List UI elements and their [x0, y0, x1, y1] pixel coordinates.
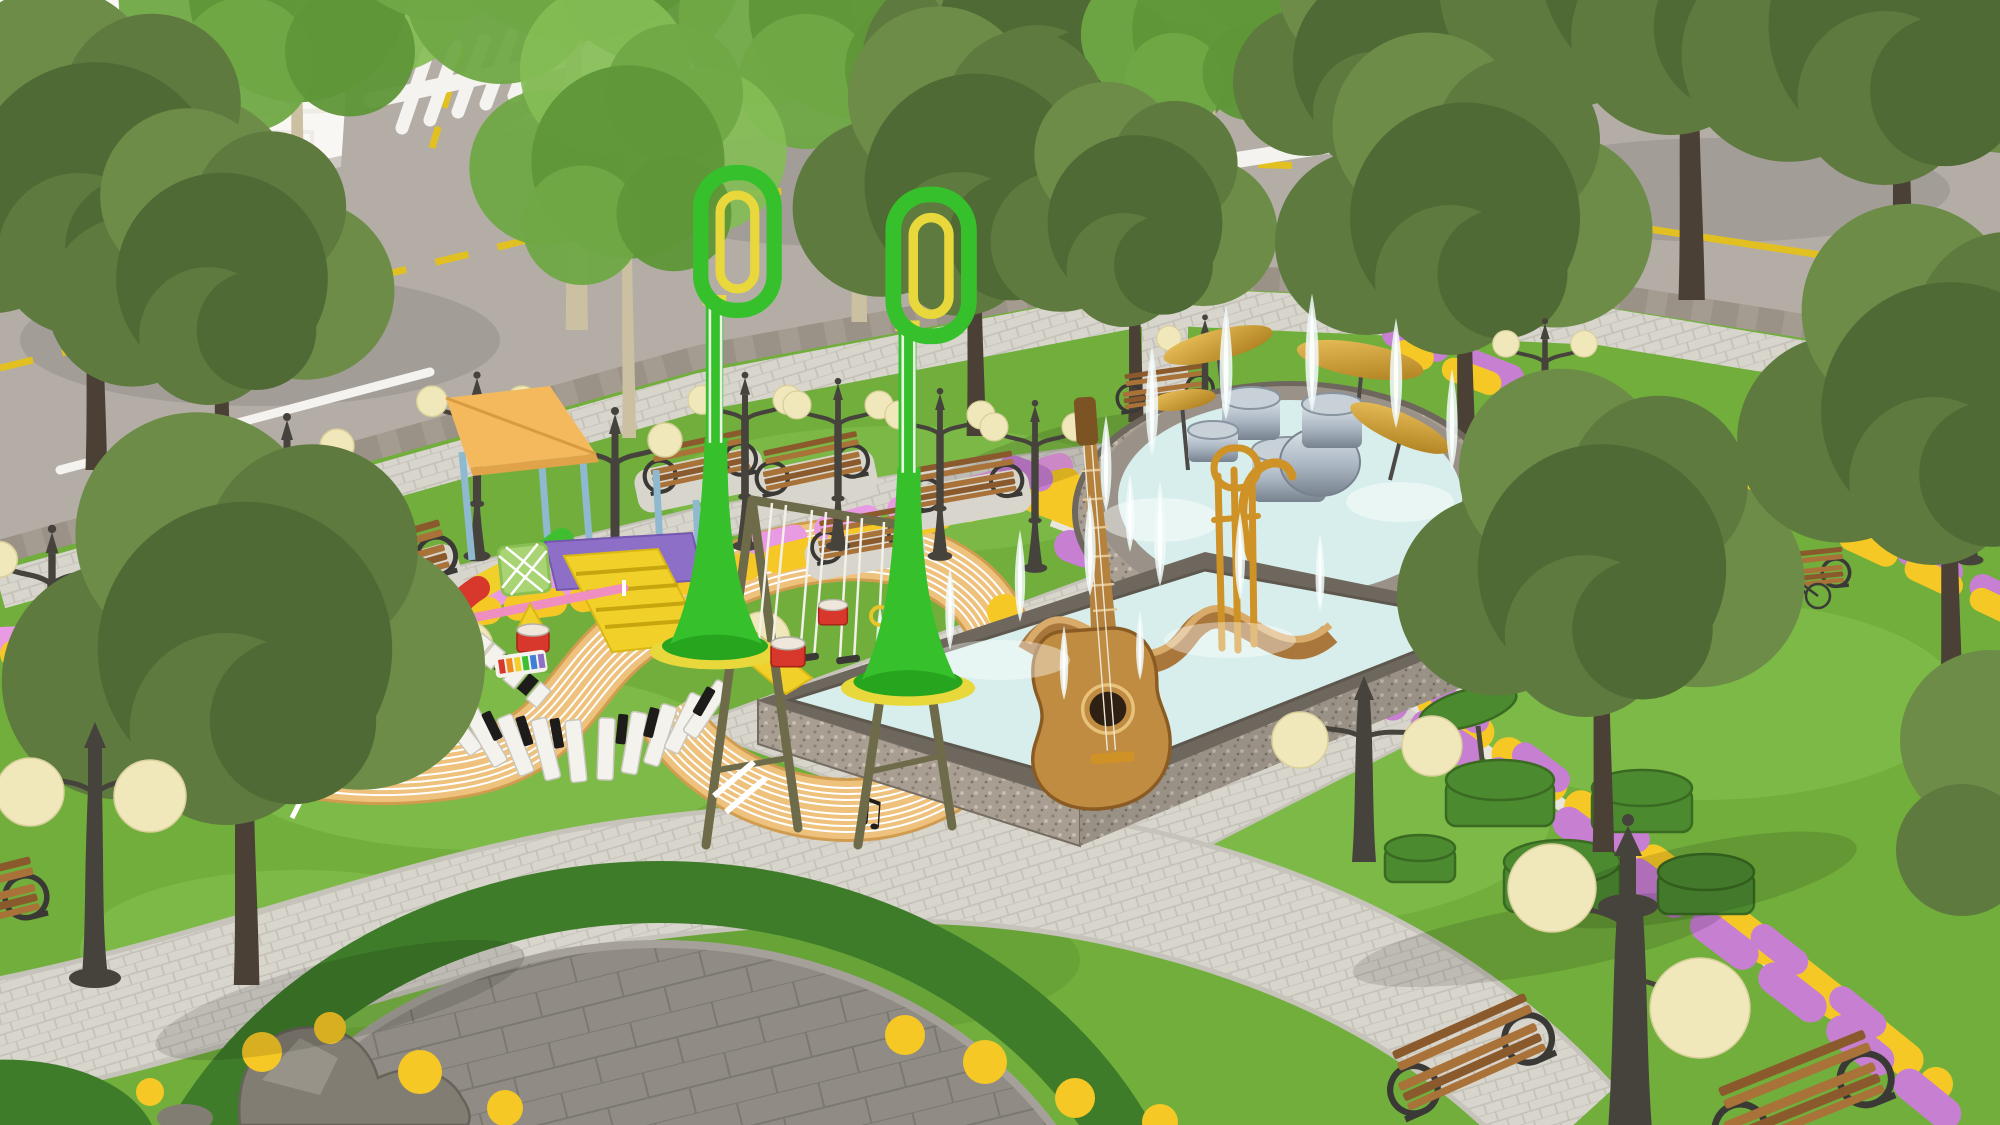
park-render: ♪ ♫ ♪ ♫ ♪ ♫ ♩ 𝄞: [0, 0, 2000, 1125]
toy-drum: [517, 624, 549, 652]
topiary-drum: [1446, 760, 1554, 826]
toy-drum: [819, 600, 848, 625]
lattice-panel: [498, 543, 551, 596]
scene-canvas: ♪ ♫ ♪ ♫ ♪ ♫ ♩ 𝄞: [0, 0, 2000, 1125]
toy-drum: [771, 637, 805, 667]
topiary-drum: [1385, 835, 1455, 882]
